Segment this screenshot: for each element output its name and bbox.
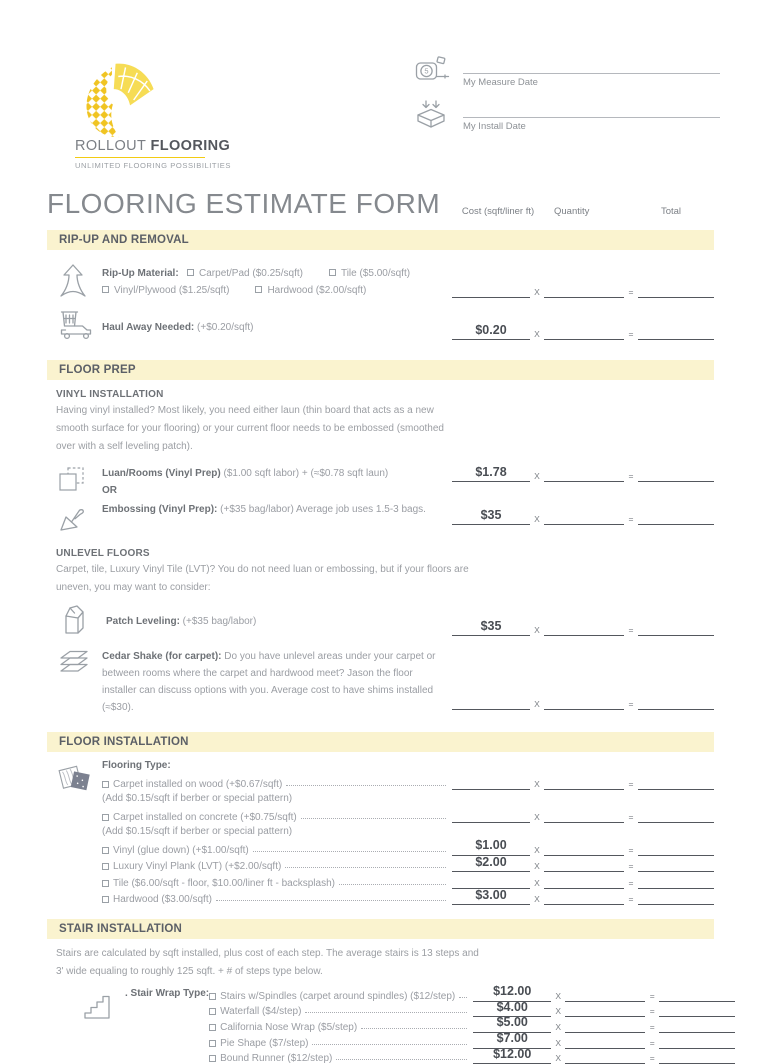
measure-date-label: My Measure Date bbox=[463, 77, 720, 88]
equals-sign: = bbox=[624, 861, 638, 872]
brand-tagline: UNLIMITED FLOORING POSSIBILITIES bbox=[75, 161, 355, 170]
carpet-wood-calc: X = bbox=[452, 776, 714, 790]
option-california-nose: California Nose Wrap ($5/step) $5.00 X = bbox=[209, 1017, 735, 1033]
cost-input-line[interactable]: $35 bbox=[452, 620, 530, 636]
cost-input-line[interactable] bbox=[452, 694, 530, 710]
equals-sign: = bbox=[645, 1038, 659, 1049]
equals-sign: = bbox=[645, 991, 659, 1002]
checkbox-hardwood-ripup[interactable] bbox=[255, 286, 262, 293]
patch-leveling-row: Patch Leveling: (+$35 bag/labor) $35 X = bbox=[47, 603, 714, 636]
dotted-leader bbox=[339, 884, 446, 885]
option-label: Tile ($6.00/sqft - floor, $10.00/liner f… bbox=[113, 878, 335, 889]
multiply-sign: X bbox=[530, 878, 544, 889]
option-note: (Add $0.15/sqft if berber or special pat… bbox=[102, 823, 714, 839]
ripup-material-row: Rip-Up Material: Carpet/Pad ($0.25/sqft)… bbox=[47, 262, 714, 299]
carpet-concrete-calc: X = bbox=[452, 809, 714, 823]
section-floor-installation-heading: FLOOR INSTALLATION bbox=[47, 732, 714, 752]
ripup-option-hardwood: Hardwood ($2.00/sqft) bbox=[267, 285, 366, 296]
cost-value: $4.00 bbox=[497, 1001, 528, 1017]
cost-value: $35 bbox=[481, 620, 502, 636]
luan-board-icon bbox=[58, 465, 102, 494]
total-input-line[interactable] bbox=[638, 466, 714, 482]
multiply-sign: X bbox=[530, 329, 544, 340]
install-date-row: My Install Date bbox=[415, 100, 720, 132]
equals-sign: = bbox=[624, 287, 638, 298]
option-vinyl-glue-down: Vinyl (glue down) (+$1.00/sqft) $1.00 X … bbox=[102, 840, 714, 856]
embossing-label: Embossing (Vinyl Prep): bbox=[102, 504, 217, 515]
stair-wrap-block: . Stair Wrap Type: Stairs w/Spindles (ca… bbox=[47, 986, 714, 1064]
option-label: Pie Shape ($7/step) bbox=[220, 1038, 308, 1049]
multiply-sign: X bbox=[530, 894, 544, 905]
option-label: Waterfall ($4/step) bbox=[220, 1006, 301, 1017]
quantity-input-line[interactable] bbox=[565, 988, 645, 1002]
total-input-line[interactable] bbox=[638, 842, 714, 856]
haul-away-row: Haul Away Needed: (+$0.20/sqft) $0.20 X … bbox=[47, 307, 714, 340]
patch-bag-icon bbox=[62, 603, 106, 636]
quantity-input-line[interactable] bbox=[565, 1035, 645, 1049]
cost-input-line[interactable] bbox=[452, 776, 530, 790]
california-nose-calc: $5.00 X = bbox=[473, 1019, 735, 1033]
option-pie-shape: Pie Shape ($7/step) $7.00 X = bbox=[209, 1033, 735, 1049]
column-header-quantity: Quantity bbox=[544, 206, 628, 217]
floor-installation-block: Flooring Type: Carpet installed on wood … bbox=[47, 760, 714, 905]
dotted-leader bbox=[301, 818, 446, 819]
ripup-option-vinyl-plywood: Vinyl/Plywood ($1.25/sqft) bbox=[114, 285, 229, 296]
equals-sign: = bbox=[624, 514, 638, 525]
patch-leveling-label: Patch Leveling: bbox=[106, 616, 180, 627]
stairs-paragraph: Stairs are calculated by sqft installed,… bbox=[47, 945, 487, 981]
option-stairs-spindles: Stairs w/Spindles (carpet around spindle… bbox=[209, 986, 735, 1002]
svg-text:5: 5 bbox=[424, 67, 428, 76]
column-header-total: Total bbox=[628, 206, 714, 217]
equals-sign: = bbox=[624, 625, 638, 636]
total-input-line[interactable] bbox=[638, 809, 714, 823]
multiply-sign: X bbox=[530, 779, 544, 790]
multiply-sign: X bbox=[551, 991, 565, 1002]
luan-row: Luan/Rooms (Vinyl Prep) ($1.00 sqft labo… bbox=[47, 465, 714, 499]
multiply-sign: X bbox=[530, 471, 544, 482]
date-fields: 5 My Measure Date bbox=[415, 44, 720, 170]
multiply-sign: X bbox=[530, 861, 544, 872]
title-row: FLOORING ESTIMATE FORM Cost (sqft/liner … bbox=[47, 188, 714, 220]
cedar-shake-calc: X = bbox=[452, 694, 714, 710]
brand-name-light: ROLLOUT bbox=[75, 138, 150, 154]
option-label: Luxury Vinyl Plank (LVT) (+$2.00/sqft) bbox=[113, 861, 281, 872]
dotted-leader bbox=[312, 1044, 467, 1045]
ripup-option-tile: Tile ($5.00/sqft) bbox=[341, 268, 410, 279]
checkbox-carpet-concrete[interactable] bbox=[102, 814, 109, 821]
quantity-input-line[interactable] bbox=[544, 466, 624, 482]
multiply-sign: X bbox=[551, 1038, 565, 1049]
dotted-leader bbox=[216, 900, 446, 901]
quantity-input-line[interactable] bbox=[544, 620, 624, 636]
cost-value: $5.00 bbox=[497, 1016, 528, 1032]
measure-date-field: My Measure Date bbox=[463, 56, 720, 88]
cost-input-line[interactable]: $1.78 bbox=[452, 466, 530, 482]
brand-name: ROLLOUT FLOORING bbox=[75, 138, 355, 154]
vinyl-installation-subheading: VINYL INSTALLATION bbox=[47, 389, 714, 400]
stair-wrap-options: Stairs w/Spindles (carpet around spindle… bbox=[209, 986, 735, 1064]
lvt-calc: $2.00 X = bbox=[452, 858, 714, 872]
multiply-sign: X bbox=[530, 812, 544, 823]
quantity-input-line[interactable] bbox=[544, 858, 624, 872]
ripup-material-calc: X = bbox=[452, 282, 714, 298]
measure-date-row: 5 My Measure Date bbox=[415, 56, 720, 88]
column-headers: Cost (sqft/liner ft) Quantity Total bbox=[452, 206, 714, 220]
cost-input-line[interactable]: $3.00 bbox=[452, 891, 530, 905]
section-ripup-heading: RIP-UP AND REMOVAL bbox=[47, 230, 714, 250]
haul-away-calc: $0.20 X = bbox=[452, 324, 714, 340]
dotted-leader bbox=[253, 851, 446, 852]
flooring-type-label: Flooring Type: bbox=[102, 760, 714, 771]
cost-value: $12.00 bbox=[493, 1048, 531, 1064]
quantity-input-line[interactable] bbox=[544, 842, 624, 856]
rip-up-arrow-icon bbox=[58, 262, 102, 299]
cost-input-line[interactable]: $12.00 bbox=[473, 1050, 551, 1064]
embossing-row: Embossing (Vinyl Prep): (+$35 bag/labor)… bbox=[47, 501, 714, 532]
embossing-detail: (+$35 bag/labor) Average job uses 1.5-3 … bbox=[217, 504, 426, 515]
cost-input-line[interactable]: $7.00 bbox=[473, 1035, 551, 1049]
option-label: Vinyl (glue down) (+$1.00/sqft) bbox=[113, 845, 249, 856]
install-date-label: My Install Date bbox=[463, 121, 720, 132]
option-label: Stairs w/Spindles (carpet around spindle… bbox=[220, 991, 455, 1002]
total-input-line[interactable] bbox=[659, 1035, 735, 1049]
stair-wrap-type-label: . Stair Wrap Type: bbox=[125, 986, 209, 1064]
checkbox-waterfall[interactable] bbox=[209, 1008, 216, 1015]
cost-input-line[interactable] bbox=[452, 809, 530, 823]
quantity-input-line[interactable] bbox=[544, 282, 624, 298]
cost-value: $1.78 bbox=[475, 466, 506, 482]
embossing-calc: $35 X = bbox=[452, 509, 714, 525]
ripup-material-label: Rip-Up Material: bbox=[102, 268, 179, 279]
shim-layers-icon bbox=[58, 648, 102, 677]
quantity-input-line[interactable] bbox=[565, 1003, 645, 1017]
option-lvt: Luxury Vinyl Plank (LVT) (+$2.00/sqft) $… bbox=[102, 856, 714, 872]
total-input-line[interactable] bbox=[638, 324, 714, 340]
multiply-sign: X bbox=[530, 287, 544, 298]
cost-value: $3.00 bbox=[475, 889, 506, 905]
section-stair-installation-heading: STAIR INSTALLATION bbox=[47, 919, 714, 939]
quantity-input-line[interactable] bbox=[544, 809, 624, 823]
cost-value: $2.00 bbox=[475, 856, 506, 872]
checkbox-carpet-pad[interactable] bbox=[187, 269, 194, 276]
luan-text: Luan/Rooms (Vinyl Prep) ($1.00 sqft labo… bbox=[102, 465, 452, 499]
cost-value: $35 bbox=[481, 509, 502, 525]
patch-leveling-text: Patch Leveling: (+$35 bag/labor) bbox=[106, 613, 452, 636]
checkbox-lvt[interactable] bbox=[102, 863, 109, 870]
total-input-line[interactable] bbox=[638, 509, 714, 525]
form-content: FLOORING ESTIMATE FORM Cost (sqft/liner … bbox=[47, 188, 714, 1064]
option-label: Carpet installed on wood (+$0.67/sqft) bbox=[113, 779, 282, 790]
cost-value: $1.00 bbox=[475, 839, 506, 855]
luan-detail: ($1.00 sqft labor) + (≈$0.78 sqft laun) bbox=[221, 468, 389, 479]
haul-truck-icon bbox=[58, 307, 102, 340]
luan-label: Luan/Rooms (Vinyl Prep) bbox=[102, 468, 221, 479]
total-input-line[interactable] bbox=[638, 858, 714, 872]
brand-name-bold: FLOORING bbox=[150, 138, 230, 154]
option-carpet-concrete: Carpet installed on concrete (+$0.75/sqf… bbox=[102, 807, 714, 823]
cost-input-line[interactable]: $1.00 bbox=[452, 842, 530, 856]
total-input-line[interactable] bbox=[638, 282, 714, 298]
quantity-input-line[interactable] bbox=[544, 694, 624, 710]
cedar-shake-row: Cedar Shake (for carpet): Do you have un… bbox=[47, 648, 714, 716]
measure-date-input[interactable] bbox=[463, 64, 720, 74]
dotted-leader bbox=[286, 785, 446, 786]
quantity-input-line[interactable] bbox=[544, 891, 624, 905]
option-tile: Tile ($6.00/sqft - floor, $10.00/liner f… bbox=[102, 872, 714, 888]
cost-input-line[interactable]: $2.00 bbox=[452, 858, 530, 872]
cedar-shake-label: Cedar Shake (for carpet): bbox=[102, 651, 221, 662]
option-label: Carpet installed on concrete (+$0.75/sqf… bbox=[113, 812, 297, 823]
column-header-cost: Cost (sqft/liner ft) bbox=[452, 206, 544, 217]
checkbox-vinyl-plywood[interactable] bbox=[102, 286, 109, 293]
checkbox-vinyl-glue[interactable] bbox=[102, 847, 109, 854]
unlevel-floors-paragraph: Carpet, tile, Luxury Vinyl Tile (LVT)? Y… bbox=[47, 561, 477, 597]
equals-sign: = bbox=[645, 1006, 659, 1017]
multiply-sign: X bbox=[530, 845, 544, 856]
brand-divider bbox=[75, 157, 205, 158]
cost-value: $7.00 bbox=[497, 1032, 528, 1048]
quantity-input-line[interactable] bbox=[544, 776, 624, 790]
stairs-icon bbox=[83, 986, 125, 1064]
bound-runner-calc: $12.00 X = bbox=[473, 1050, 735, 1064]
checkbox-california-nose[interactable] bbox=[209, 1024, 216, 1031]
cost-input-line[interactable]: $5.00 bbox=[473, 1019, 551, 1033]
or-label: OR bbox=[102, 485, 117, 496]
dotted-leader bbox=[361, 1028, 467, 1029]
unlevel-floors-subheading: UNLEVEL FLOORS bbox=[47, 548, 714, 559]
equals-sign: = bbox=[624, 329, 638, 340]
quantity-input-line[interactable] bbox=[544, 324, 624, 340]
flooring-type-options: Flooring Type: Carpet installed on wood … bbox=[102, 760, 714, 905]
multiply-sign: X bbox=[551, 1053, 565, 1064]
page-title: FLOORING ESTIMATE FORM bbox=[47, 188, 452, 220]
equals-sign: = bbox=[624, 471, 638, 482]
section-floor-prep-heading: FLOOR PREP bbox=[47, 360, 714, 380]
cedar-shake-text: Cedar Shake (for carpet): Do you have un… bbox=[102, 648, 452, 716]
dotted-leader bbox=[305, 1012, 467, 1013]
hardwood-calc: $3.00 X = bbox=[452, 891, 714, 905]
haul-away-label: Haul Away Needed: bbox=[102, 322, 194, 333]
quantity-input-line[interactable] bbox=[544, 875, 624, 889]
checkbox-pie-shape[interactable] bbox=[209, 1040, 216, 1047]
ripup-option-carpet-pad: Carpet/Pad ($0.25/sqft) bbox=[199, 268, 303, 279]
equals-sign: = bbox=[624, 894, 638, 905]
total-input-line[interactable] bbox=[659, 1050, 735, 1064]
vinyl-installation-paragraph: Having vinyl installed? Most likely, you… bbox=[47, 402, 447, 456]
total-input-line[interactable] bbox=[659, 1019, 735, 1033]
total-input-line[interactable] bbox=[659, 1003, 735, 1017]
install-box-icon bbox=[415, 100, 463, 130]
haul-away-detail: (+$0.20/sqft) bbox=[194, 322, 253, 333]
cost-input-line[interactable] bbox=[452, 875, 530, 889]
checkbox-tile-ripup[interactable] bbox=[329, 269, 336, 276]
checkbox-hardwood-install[interactable] bbox=[102, 896, 109, 903]
multiply-sign: X bbox=[530, 625, 544, 636]
cost-input-line[interactable]: $0.20 bbox=[452, 324, 530, 340]
install-date-field: My Install Date bbox=[463, 100, 720, 132]
pie-shape-calc: $7.00 X = bbox=[473, 1035, 735, 1049]
option-hardwood: Hardwood ($3.00/sqft) $3.00 X = bbox=[102, 889, 714, 905]
embossing-text: Embossing (Vinyl Prep): (+$35 bag/labor)… bbox=[102, 501, 452, 518]
total-input-line[interactable] bbox=[638, 891, 714, 905]
quantity-input-line[interactable] bbox=[565, 1050, 645, 1064]
tape-measure-icon: 5 bbox=[415, 56, 463, 86]
haul-away-text: Haul Away Needed: (+$0.20/sqft) bbox=[102, 319, 452, 340]
cost-value: $0.20 bbox=[475, 324, 506, 340]
checkbox-carpet-wood[interactable] bbox=[102, 781, 109, 788]
equals-sign: = bbox=[624, 845, 638, 856]
cost-input-line[interactable] bbox=[452, 282, 530, 298]
vinyl-calc: $1.00 X = bbox=[452, 842, 714, 856]
option-bound-runner: Bound Runner ($12/step) $12.00 X = bbox=[209, 1049, 735, 1064]
total-input-line[interactable] bbox=[659, 988, 735, 1002]
page-header: ROLLOUT FLOORING UNLIMITED FLOORING POSS… bbox=[0, 0, 770, 170]
dotted-leader bbox=[336, 1059, 467, 1060]
equals-sign: = bbox=[624, 812, 638, 823]
multiply-sign: X bbox=[530, 514, 544, 525]
trowel-icon bbox=[58, 501, 102, 532]
ripup-material-text: Rip-Up Material: Carpet/Pad ($0.25/sqft)… bbox=[102, 265, 452, 299]
option-label: Hardwood ($3.00/sqft) bbox=[113, 894, 212, 905]
patch-leveling-detail: (+$35 bag/labor) bbox=[180, 616, 256, 627]
equals-sign: = bbox=[624, 699, 638, 710]
install-date-input[interactable] bbox=[463, 108, 720, 118]
total-input-line[interactable] bbox=[638, 620, 714, 636]
cost-value: $12.00 bbox=[493, 985, 531, 1001]
option-carpet-wood: Carpet installed on wood (+$0.67/sqft) X… bbox=[102, 774, 714, 790]
luan-calc: $1.78 X = bbox=[452, 466, 714, 482]
total-input-line[interactable] bbox=[638, 694, 714, 710]
option-label: Bound Runner ($12/step) bbox=[220, 1053, 332, 1064]
equals-sign: = bbox=[645, 1053, 659, 1064]
multiply-sign: X bbox=[530, 699, 544, 710]
quantity-input-line[interactable] bbox=[544, 509, 624, 525]
dotted-leader bbox=[459, 997, 467, 998]
checkbox-bound-runner[interactable] bbox=[209, 1055, 216, 1062]
brand-block: ROLLOUT FLOORING UNLIMITED FLOORING POSS… bbox=[75, 44, 355, 170]
flooring-samples-icon bbox=[58, 760, 102, 905]
rollout-flooring-logo-icon bbox=[75, 62, 355, 138]
checkbox-tile-install[interactable] bbox=[102, 880, 109, 887]
checkbox-stairs-spindles[interactable] bbox=[209, 993, 216, 1000]
option-waterfall: Waterfall ($4/step) $4.00 X = bbox=[209, 1002, 735, 1018]
total-input-line[interactable] bbox=[638, 875, 714, 889]
dotted-leader bbox=[285, 867, 446, 868]
cost-input-line[interactable]: $35 bbox=[452, 509, 530, 525]
equals-sign: = bbox=[624, 878, 638, 889]
option-note: (Add $0.15/sqft if berber or special pat… bbox=[102, 790, 714, 806]
total-input-line[interactable] bbox=[638, 776, 714, 790]
multiply-sign: X bbox=[551, 1006, 565, 1017]
tile-calc: X = bbox=[452, 875, 714, 889]
patch-leveling-calc: $35 X = bbox=[452, 620, 714, 636]
quantity-input-line[interactable] bbox=[565, 1019, 645, 1033]
equals-sign: = bbox=[624, 779, 638, 790]
